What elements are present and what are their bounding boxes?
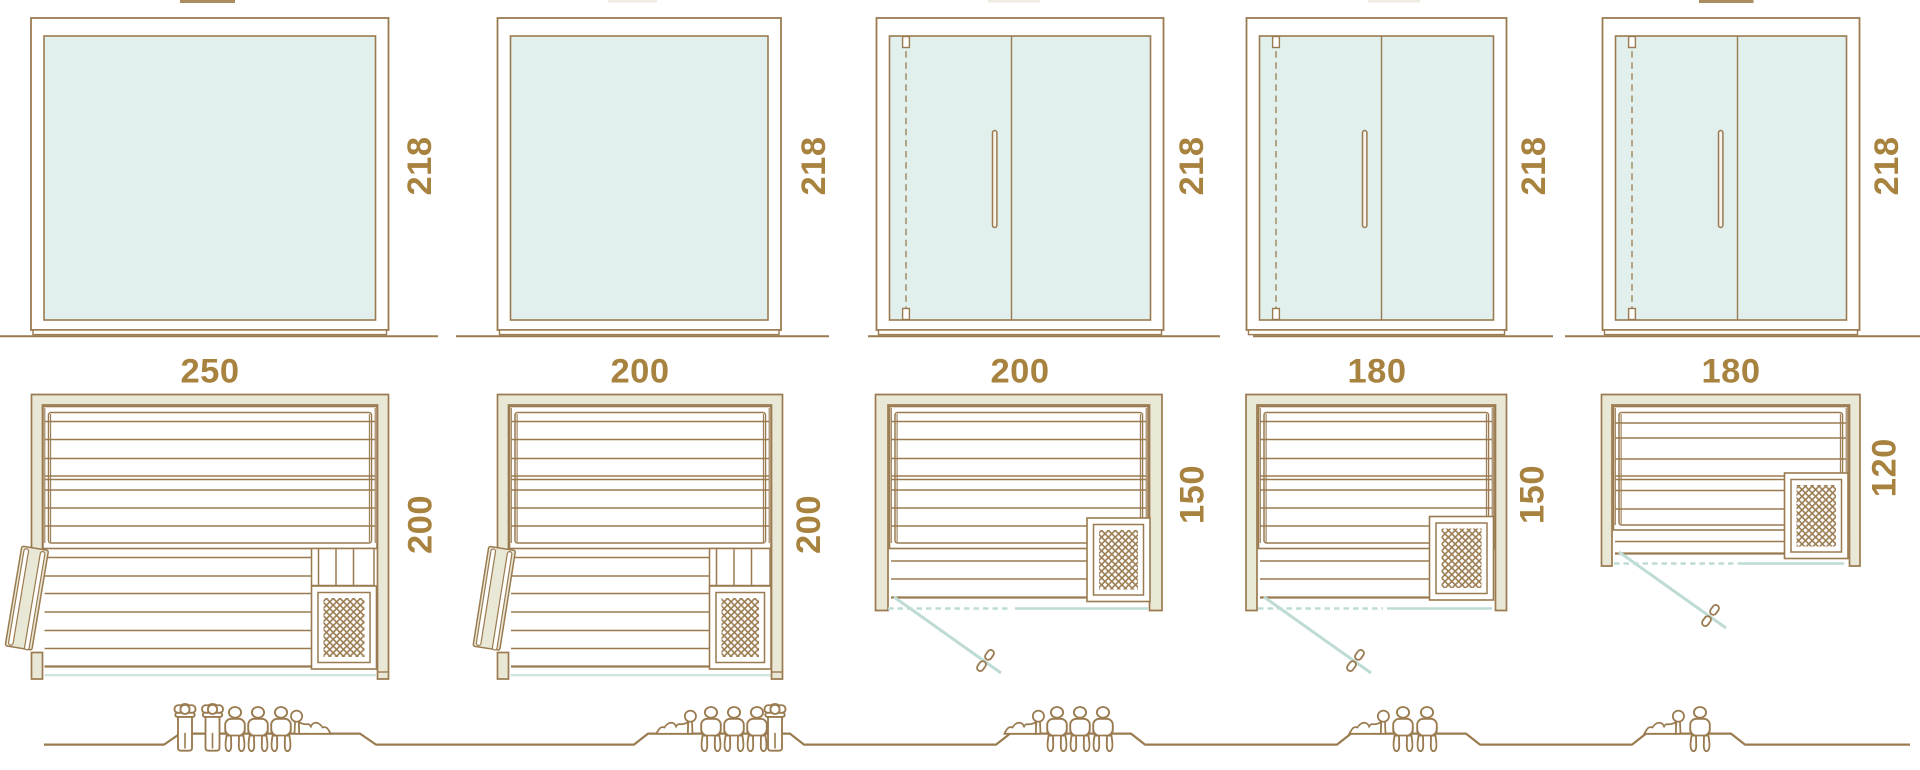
- svg-text:218: 218: [1515, 136, 1553, 195]
- svg-text:200: 200: [990, 353, 1049, 391]
- svg-text:218: 218: [795, 136, 833, 195]
- svg-text:150: 150: [1174, 465, 1212, 524]
- svg-text:218: 218: [401, 136, 439, 195]
- svg-text:150: 150: [1514, 465, 1552, 524]
- svg-text:200: 200: [402, 495, 440, 554]
- svg-text:250: 250: [180, 353, 239, 391]
- svg-text:200: 200: [790, 495, 828, 554]
- svg-text:180: 180: [1701, 353, 1760, 391]
- svg-text:200: 200: [610, 353, 669, 391]
- svg-text:218: 218: [1173, 136, 1211, 195]
- svg-text:180: 180: [1347, 353, 1406, 391]
- svg-text:218: 218: [1868, 136, 1906, 195]
- svg-text:120: 120: [1866, 438, 1904, 497]
